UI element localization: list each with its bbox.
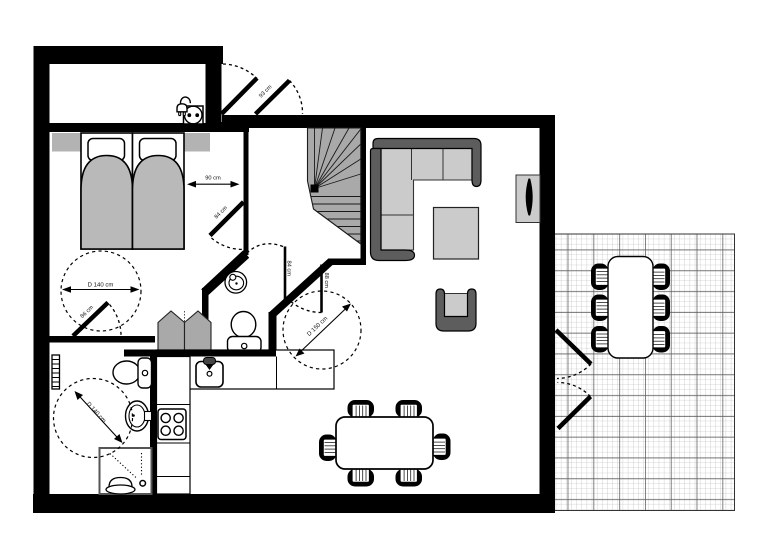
svg-text:84 cm: 84 cm [286, 261, 292, 277]
svg-text:D 140 cm: D 140 cm [88, 282, 114, 289]
svg-text:90 cm: 90 cm [205, 176, 221, 182]
svg-text:88 cm: 88 cm [323, 273, 329, 289]
